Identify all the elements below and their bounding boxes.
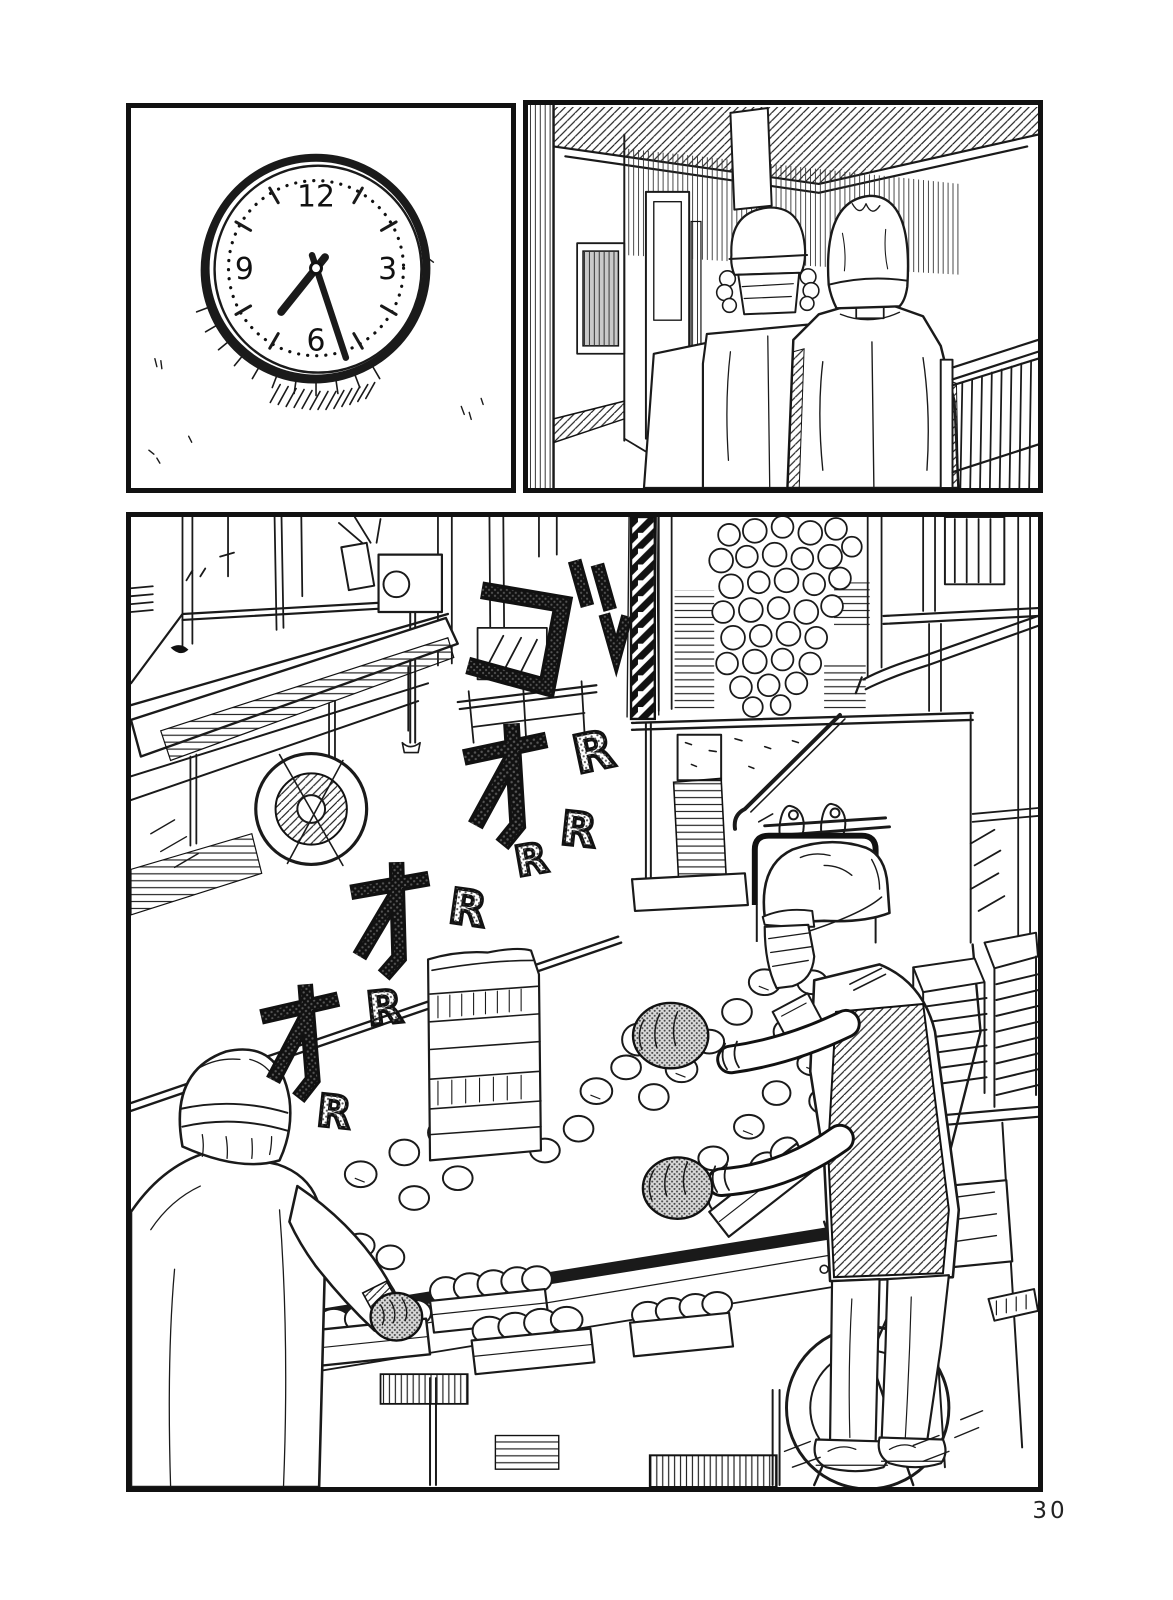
sfx-o-katakana-1 — [461, 720, 557, 848]
manga-page: 12 3 6 9 — [0, 0, 1173, 1600]
panel-factory: R R R R R R — [126, 512, 1043, 1492]
clock-panel-art: 12 3 6 9 — [131, 108, 511, 488]
railing-rails — [953, 340, 1038, 472]
page-number: 30 — [1018, 1498, 1082, 1524]
hand-rail-pipe — [856, 616, 1038, 693]
sfx-r-5: R — [364, 980, 404, 1036]
worker-right — [622, 842, 982, 1471]
worker-right-shoe-left — [815, 1439, 888, 1471]
clock-numeral-12: 12 — [297, 179, 335, 214]
panel-hallway — [523, 100, 1043, 493]
ribbed-strip — [381, 1374, 468, 1404]
sfx-go-katakana — [468, 561, 627, 688]
sfx-r-1: R — [568, 719, 619, 786]
sfx-o-katakana-2 — [349, 860, 436, 977]
railing-post — [941, 360, 953, 488]
left-conveyor — [131, 614, 458, 915]
tray-stack — [428, 949, 541, 1160]
clock-center-pin — [311, 263, 322, 274]
worker-right-glove-upper — [633, 1003, 708, 1068]
sfx-r-6: R — [315, 1086, 354, 1139]
worker-right-cap — [764, 842, 890, 921]
worker-right-face-mask — [765, 925, 815, 988]
clock-numeral-9: 9 — [235, 252, 254, 287]
panel-clock: 12 3 6 9 — [126, 103, 516, 493]
sfx-r-3: R — [511, 833, 551, 887]
factory-art: R R R R R R — [131, 517, 1038, 1487]
worker-right-leg-left — [830, 1279, 880, 1441]
worker-right-shoe-right — [879, 1438, 946, 1468]
conveyor-wheel — [256, 754, 367, 866]
worker-right-glove-lower — [643, 1157, 712, 1218]
dough-chute — [659, 517, 882, 717]
ink-specks — [149, 259, 483, 463]
tin-c — [472, 1307, 595, 1374]
sfx-r-4: R — [446, 879, 490, 939]
hallway-art — [528, 105, 1038, 488]
left-wall-shadow — [528, 105, 554, 488]
sfx-r-2: R — [558, 802, 598, 858]
wall-clock: 12 3 6 9 — [197, 158, 427, 410]
ribbed-tin-empty — [650, 1455, 777, 1487]
ceiling-post — [730, 108, 771, 210]
baseboard-shadow — [554, 401, 625, 442]
clock-numeral-6: 6 — [307, 324, 326, 359]
worker-right-leg-right — [882, 1275, 949, 1441]
tin-right — [630, 1292, 733, 1356]
worker-middle-cap — [731, 208, 805, 275]
worker-front-right-cap — [828, 196, 908, 309]
wall-rail — [884, 608, 1038, 624]
worker-left-glove — [371, 1293, 422, 1341]
ladder-marks — [131, 586, 153, 612]
spark-lines — [339, 517, 381, 547]
clock-numeral-3: 3 — [378, 252, 397, 287]
